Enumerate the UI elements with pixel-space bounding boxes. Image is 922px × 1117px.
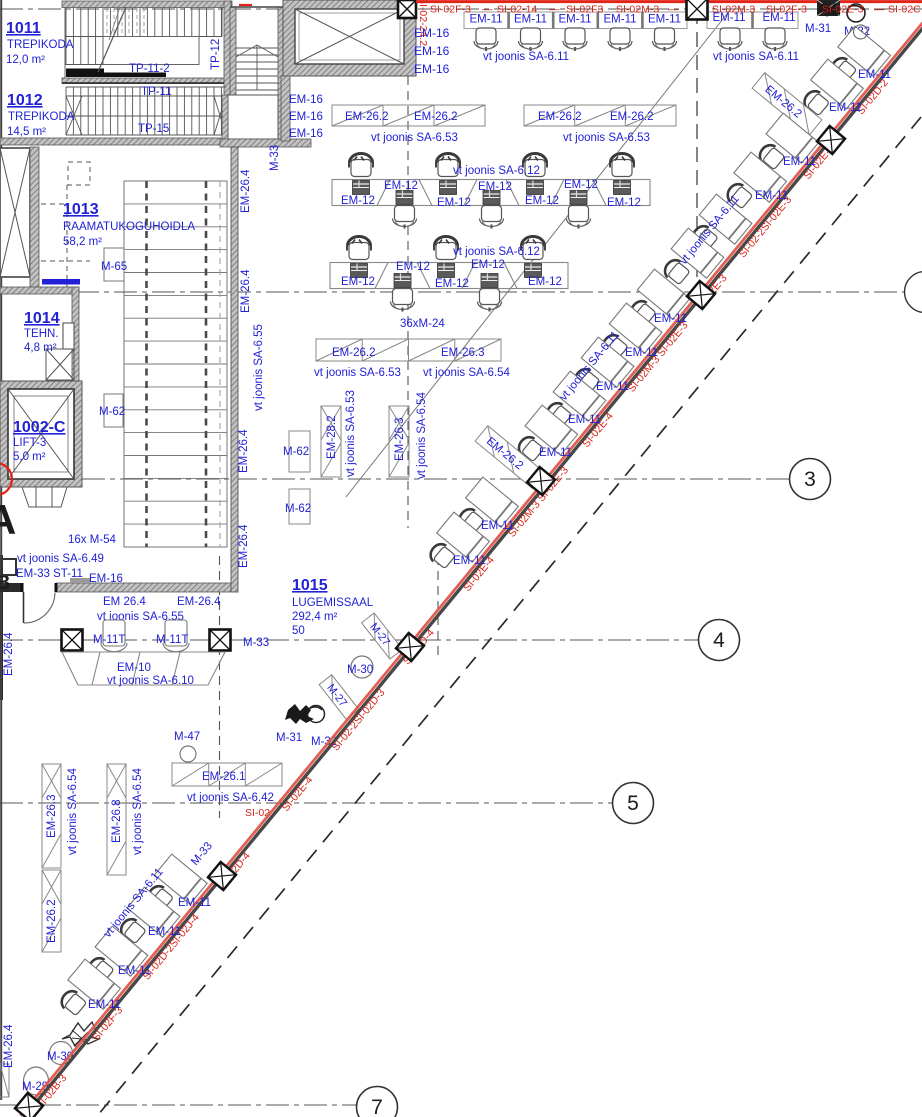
svg-text:EM-26.4: EM-26.4	[3, 1024, 15, 1068]
svg-text:EM-12: EM-12	[437, 197, 471, 209]
svg-text:vt joonis SA-6.54: vt joonis SA-6.54	[416, 391, 428, 479]
svg-text:36xM-24: 36xM-24	[400, 318, 445, 330]
svg-text:RAAMATUKOGUHOIDLA: RAAMATUKOGUHOIDLA	[63, 221, 195, 233]
svg-text:EM-11: EM-11	[148, 926, 181, 938]
svg-text:EM-26.4: EM-26.4	[238, 524, 250, 568]
svg-text:EM-26.2: EM-26.2	[610, 111, 653, 123]
svg-text:vt joonis SA-6.49: vt joonis SA-6.49	[17, 553, 104, 565]
svg-text:LIFT-3: LIFT-3	[13, 437, 46, 449]
svg-text:EM-26.4: EM-26.4	[238, 429, 250, 473]
svg-text:EM-11: EM-11	[481, 520, 514, 532]
svg-text:M-30: M-30	[347, 664, 373, 676]
svg-text:EM-11: EM-11	[453, 555, 486, 567]
svg-text:EM-12: EM-12	[435, 278, 469, 290]
svg-text:SI-02E-3: SI-02E-3	[822, 4, 864, 16]
svg-text:SI-02M-3: SI-02M-3	[616, 4, 659, 16]
svg-text:EM-26.3: EM-26.3	[46, 795, 58, 838]
svg-text:EM-26.2: EM-26.2	[538, 111, 581, 123]
svg-text:16x M-54: 16x M-54	[68, 534, 117, 546]
svg-text:M-62: M-62	[285, 503, 311, 515]
svg-text:1014: 1014	[24, 310, 60, 327]
svg-text:M-11T: M-11T	[93, 634, 125, 646]
svg-text:vt joonis SA-6.11: vt joonis SA-6.11	[483, 51, 569, 63]
svg-text:7: 7	[371, 1096, 383, 1117]
svg-text:TP-12: TP-12	[210, 39, 222, 70]
svg-text:M-62: M-62	[283, 446, 309, 458]
svg-text:EM-26.4: EM-26.4	[3, 632, 15, 676]
svg-text:vt joonis SA-6.53: vt joonis SA-6.53	[345, 390, 357, 477]
svg-text:M-62: M-62	[99, 406, 125, 418]
svg-text:SI-02F-3: SI-02F-3	[766, 4, 807, 16]
svg-text:EM 26.4: EM 26.4	[103, 596, 146, 608]
svg-text:EM-12: EM-12	[396, 261, 430, 273]
svg-text:SI-02F3: SI-02F3	[566, 4, 604, 16]
svg-text:M-65: M-65	[101, 261, 127, 273]
svg-text:SI-02C: SI-02C	[888, 4, 921, 16]
svg-text:1012: 1012	[7, 92, 43, 109]
svg-text:vt joonis SA-6.12: vt joonis SA-6.12	[453, 246, 540, 258]
svg-text:vt joonis SA-6.54: vt joonis SA-6.54	[132, 767, 144, 855]
svg-text:SI-02F-3: SI-02F-3	[430, 4, 471, 16]
svg-text:TREPIKODA: TREPIKODA	[8, 111, 75, 123]
svg-text:EM-12: EM-12	[341, 276, 375, 288]
svg-text:EM-11: EM-11	[858, 69, 891, 81]
svg-text:1011: 1011	[6, 20, 41, 37]
svg-text:TP-15: TP-15	[138, 123, 169, 135]
svg-text:4: 4	[713, 629, 725, 652]
svg-text:58,2 m²: 58,2 m²	[63, 236, 102, 248]
svg-text:—: —	[549, 4, 560, 16]
svg-text:A: A	[0, 496, 16, 543]
svg-text:EM-26.3: EM-26.3	[441, 347, 484, 359]
svg-text:M-11T: M-11T	[156, 634, 188, 646]
svg-text:EM-11: EM-11	[118, 965, 151, 977]
svg-text:EM-28.2: EM-28.2	[326, 416, 338, 459]
svg-text:14,5 m²: 14,5 m²	[7, 126, 46, 138]
svg-text:EM-26.2: EM-26.2	[414, 111, 457, 123]
svg-text:EM-16: EM-16	[414, 26, 450, 40]
svg-text:4,8 m²: 4,8 m²	[24, 342, 57, 354]
svg-text:EM-12: EM-12	[525, 195, 559, 207]
svg-text:EM-26.3: EM-26.3	[394, 418, 406, 461]
svg-text:M-31: M-31	[276, 732, 302, 744]
svg-text:EM-16: EM-16	[289, 128, 323, 140]
svg-text:EM-26.8: EM-26.8	[111, 800, 123, 843]
svg-text:12,0 m²: 12,0 m²	[6, 54, 45, 66]
svg-text:5: 5	[627, 792, 639, 815]
svg-text:vt joonis SA-6.54: vt joonis SA-6.54	[423, 367, 511, 379]
svg-text:TEHN.: TEHN.	[24, 328, 59, 340]
svg-text:vt joonis SA-6.53: vt joonis SA-6.53	[371, 132, 458, 144]
svg-text:50: 50	[292, 625, 305, 637]
svg-text:1013: 1013	[63, 201, 99, 218]
svg-text:EM-16: EM-16	[414, 44, 450, 58]
svg-text:3: 3	[804, 468, 816, 491]
svg-text:vt joonis SA-6.12: vt joonis SA-6.12	[453, 165, 540, 177]
svg-text:EM-11: EM-11	[755, 190, 788, 202]
svg-text:EM-12: EM-12	[478, 181, 512, 193]
svg-text:—: —	[668, 4, 679, 16]
svg-text:EM-16: EM-16	[89, 573, 123, 585]
svg-text:EM-26.2: EM-26.2	[332, 347, 375, 359]
svg-text:1015: 1015	[292, 577, 328, 594]
svg-text:292,4 m²: 292,4 m²	[292, 611, 338, 623]
svg-text:EM-11: EM-11	[654, 313, 687, 325]
svg-text:TP-11: TP-11	[141, 86, 171, 98]
svg-text:EM-26.4: EM-26.4	[177, 596, 221, 608]
svg-text:EM-16: EM-16	[414, 62, 450, 76]
svg-text:EM-12: EM-12	[341, 195, 375, 207]
svg-text:EM-33 ST-11: EM-33 ST-11	[16, 568, 83, 580]
svg-text:vt joonis SA-6.54: vt joonis SA-6.54	[67, 767, 79, 855]
svg-text:TREPIKODA: TREPIKODA	[7, 39, 74, 51]
svg-text:M-33: M-33	[269, 145, 281, 171]
svg-text:M-47: M-47	[174, 731, 200, 743]
svg-text:vt joonis SA-6.10: vt joonis SA-6.10	[107, 675, 194, 687]
svg-text:EM-16: EM-16	[289, 111, 323, 123]
svg-text:EM-16: EM-16	[289, 94, 323, 106]
svg-text:EM-11: EM-11	[88, 999, 121, 1011]
svg-text:vt joonis SA-6.53: vt joonis SA-6.53	[314, 367, 401, 379]
svg-text:M-31: M-31	[805, 23, 831, 35]
svg-text:EM-26.2: EM-26.2	[345, 111, 388, 123]
svg-text:EM-12: EM-12	[528, 276, 562, 288]
svg-text:EM-11: EM-11	[539, 447, 572, 459]
svg-text:TP-11-2: TP-11-2	[129, 63, 170, 75]
svg-text:EM-10: EM-10	[117, 662, 151, 674]
svg-text:EM-26.4: EM-26.4	[240, 269, 252, 313]
svg-text:vt joonis SA-6.53: vt joonis SA-6.53	[563, 132, 650, 144]
svg-text:EM-26.4: EM-26.4	[240, 169, 252, 213]
svg-text:5,0 m²: 5,0 m²	[13, 451, 46, 463]
svg-text:EM-12: EM-12	[607, 197, 641, 209]
svg-text:vt joonis SA-6.11: vt joonis SA-6.11	[713, 51, 799, 63]
svg-text:SI-02-14: SI-02-14	[497, 4, 537, 16]
svg-text:1002-C: 1002-C	[13, 419, 66, 436]
svg-text:vt joonis SA-6.55: vt joonis SA-6.55	[253, 324, 265, 411]
svg-text:vt joonis SA-6.42: vt joonis SA-6.42	[187, 792, 274, 804]
svg-text:EM-11: EM-11	[625, 347, 658, 359]
svg-text:M-33: M-33	[243, 637, 269, 649]
svg-text:SI-02M-3: SI-02M-3	[712, 4, 755, 16]
svg-text:EM-11: EM-11	[178, 897, 211, 909]
svg-text:EM-11: EM-11	[783, 156, 816, 168]
svg-text:EM-11: EM-11	[829, 102, 862, 114]
svg-text:EM-11: EM-11	[568, 414, 601, 426]
svg-text:EM-26.1: EM-26.1	[202, 771, 245, 783]
svg-text:—: —	[482, 4, 493, 16]
svg-text:LUGEMISSAAL: LUGEMISSAAL	[292, 597, 374, 609]
svg-text:EM-12: EM-12	[471, 259, 505, 271]
svg-text:EM-12: EM-12	[384, 180, 418, 192]
svg-text:EM-12: EM-12	[564, 179, 598, 191]
svg-text:EM-26.2: EM-26.2	[46, 900, 58, 943]
svg-text:—: —	[874, 4, 885, 16]
svg-text:EM-11: EM-11	[596, 381, 629, 393]
